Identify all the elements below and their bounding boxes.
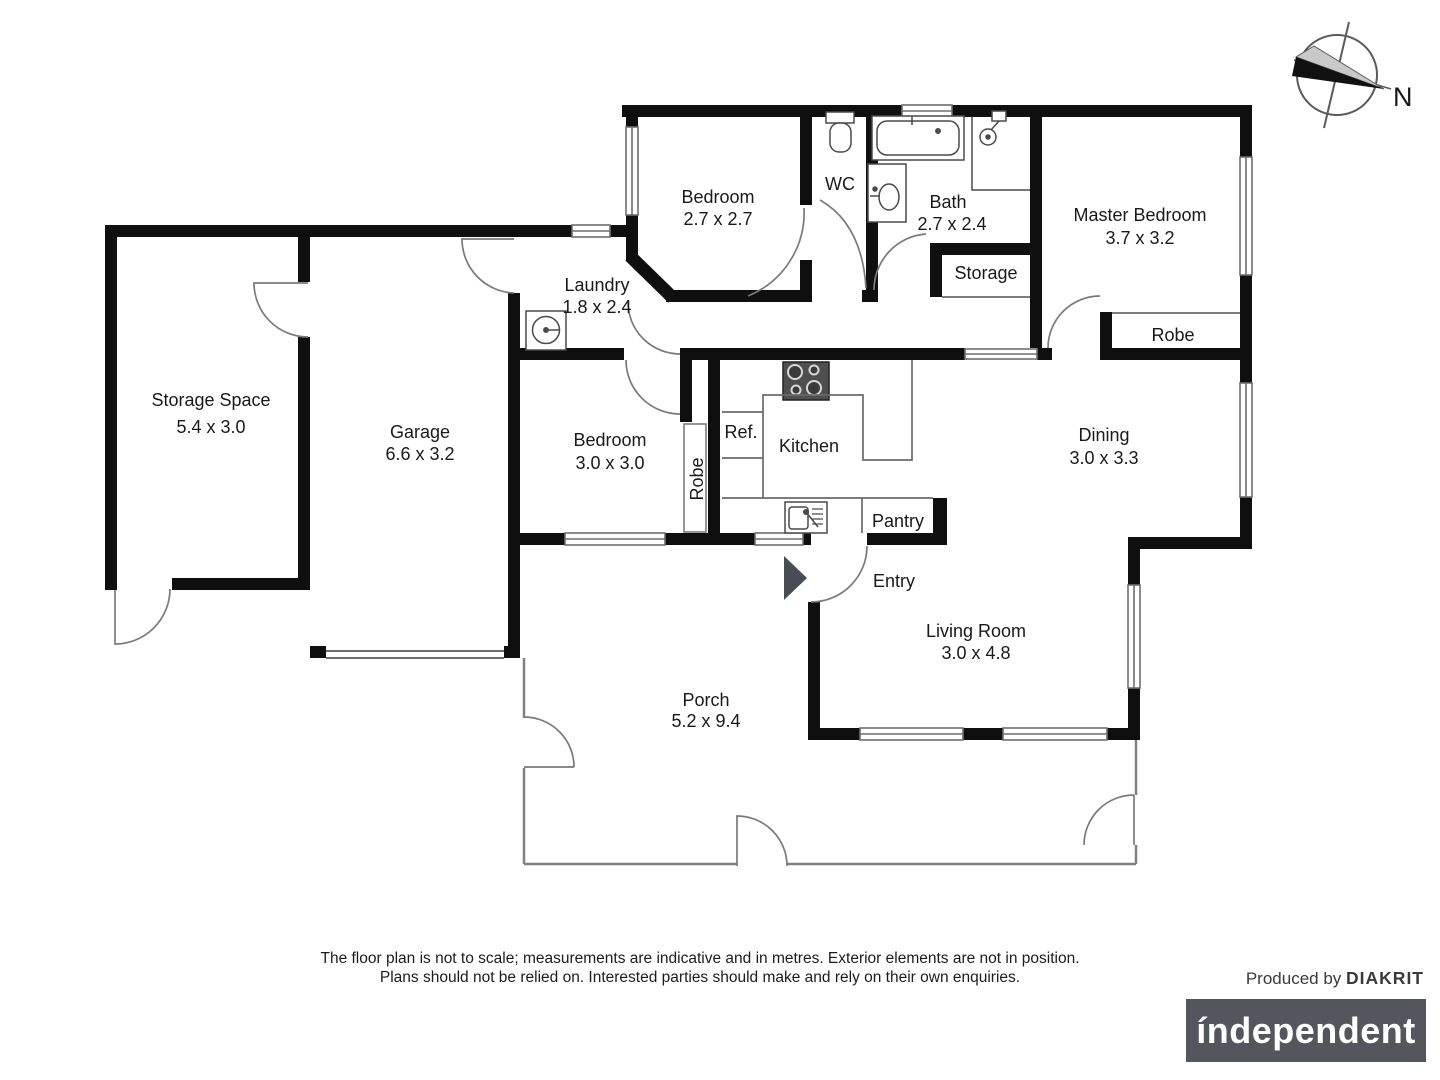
door-garage-laundry xyxy=(462,239,514,293)
bathtub-icon xyxy=(872,116,964,160)
door-porch-right xyxy=(1084,795,1134,845)
window xyxy=(755,533,803,545)
floor-plan-page: N Bedroom 2.7 x 2.7 WC Bath 2.7 x 2.4 Ma… xyxy=(0,0,1440,1080)
room-dims-master-bedroom: 3.7 x 3.2 xyxy=(1105,228,1174,248)
window xyxy=(565,533,665,545)
shower-icon xyxy=(972,111,1030,190)
room-dims-garage: 6.6 x 3.2 xyxy=(385,444,454,464)
room-dims-laundry: 1.8 x 2.4 xyxy=(562,297,631,317)
room-label-pantry: Pantry xyxy=(872,511,924,531)
room-label-kitchen: Kitchen xyxy=(779,436,839,456)
windows xyxy=(565,105,1252,740)
compass-north-label: N xyxy=(1393,82,1413,112)
walls xyxy=(105,105,1252,740)
door-porch-bottom xyxy=(737,816,787,866)
vanity-icon xyxy=(868,164,906,222)
room-label-master-bedroom: Master Bedroom xyxy=(1073,205,1206,225)
door-master xyxy=(1048,296,1100,348)
room-label-living-room: Living Room xyxy=(926,621,1026,641)
door-laundry xyxy=(628,302,680,354)
door-storage-space-exterior xyxy=(115,589,170,644)
produced-by-text: Produced by xyxy=(1246,969,1346,988)
room-label-storage-space: Storage Space xyxy=(151,390,270,410)
kitchen-sink-icon xyxy=(785,502,827,533)
room-label-porch: Porch xyxy=(682,690,729,710)
disclaimer-line1: The floor plan is not to scale; measurem… xyxy=(0,950,1400,969)
door-porch-left xyxy=(524,717,574,767)
laundry-trough-icon xyxy=(526,311,566,350)
room-label-dining: Dining xyxy=(1078,425,1129,445)
window xyxy=(902,105,952,117)
room-label-laundry: Laundry xyxy=(564,275,629,295)
entry-arrow-icon xyxy=(784,556,807,600)
room-label-bath: Bath xyxy=(929,192,966,212)
room-label-bedroom-mid: Bedroom xyxy=(573,430,646,450)
produced-by: Produced by DIAKRIT xyxy=(1246,968,1424,989)
window xyxy=(1128,585,1140,688)
room-label-entry: Entry xyxy=(873,571,915,591)
room-dims-bath: 2.7 x 2.4 xyxy=(917,214,986,234)
sliding-door xyxy=(965,349,1037,359)
compass: N xyxy=(1292,22,1413,128)
porch-walls xyxy=(524,658,1136,864)
window xyxy=(1003,728,1107,740)
floor-plan: N Bedroom 2.7 x 2.7 WC Bath 2.7 x 2.4 Ma… xyxy=(0,0,1440,1080)
producer-name: DIAKRIT xyxy=(1346,968,1424,988)
room-label-storage: Storage xyxy=(954,263,1017,283)
room-dims-living-room: 3.0 x 4.8 xyxy=(941,643,1010,663)
room-dims-porch: 5.2 x 9.4 xyxy=(671,711,740,731)
window xyxy=(1240,383,1252,497)
room-label-wc: WC xyxy=(825,174,855,194)
agency-logo-text: índependent xyxy=(1196,1010,1416,1052)
window xyxy=(1240,157,1252,275)
room-label-bedroom-top: Bedroom xyxy=(681,187,754,207)
room-label-garage: Garage xyxy=(390,422,450,442)
door-storage-garage xyxy=(254,283,308,337)
disclaimer-line2: Plans should not be relied on. Intereste… xyxy=(0,969,1400,988)
door-bedroom-mid xyxy=(626,360,680,414)
door-entry xyxy=(811,546,867,602)
room-dims-dining: 3.0 x 3.3 xyxy=(1069,448,1138,468)
garage-door xyxy=(326,651,504,658)
window xyxy=(860,728,963,740)
window xyxy=(572,225,610,237)
room-dims-bedroom-mid: 3.0 x 3.0 xyxy=(575,453,644,473)
room-label-robe-master: Robe xyxy=(1151,325,1194,345)
door-bath xyxy=(874,234,926,290)
door-bedroom-top xyxy=(748,208,804,296)
room-label-fridge: Ref. xyxy=(724,422,757,442)
door-wc xyxy=(820,200,866,288)
disclaimer: The floor plan is not to scale; measurem… xyxy=(0,950,1400,987)
room-dims-storage-space: 5.4 x 3.0 xyxy=(176,417,245,437)
toilet-icon xyxy=(826,112,854,152)
agency-logo: índependent xyxy=(1186,999,1426,1062)
room-label-robe-bedroom: Robe xyxy=(687,457,707,500)
room-dims-bedroom-top: 2.7 x 2.7 xyxy=(683,209,752,229)
window xyxy=(626,127,638,215)
